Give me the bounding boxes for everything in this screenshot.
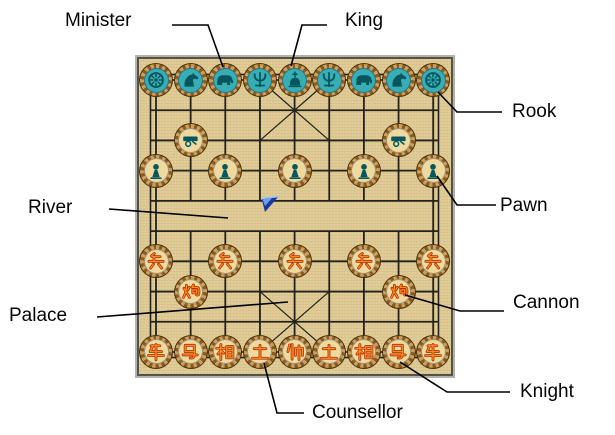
river-flag-icon — [260, 195, 280, 214]
black-knight-icon — [178, 68, 203, 93]
black-minister-piece[interactable] — [209, 64, 241, 96]
red-rook-icon — [421, 339, 446, 364]
red-king-icon — [282, 339, 307, 364]
red-pawn-icon — [213, 249, 238, 274]
black-cannon-piece[interactable] — [383, 124, 415, 156]
black-pawn-icon — [351, 158, 376, 183]
xiangqi-board[interactable] — [137, 57, 453, 376]
red-pawn-icon — [144, 249, 169, 274]
black-rook-piece[interactable] — [140, 64, 172, 96]
red-counsellor-piece[interactable] — [244, 336, 276, 368]
black-king-icon — [282, 68, 307, 93]
black-pawn-icon — [421, 158, 446, 183]
black-rook-icon — [421, 68, 446, 93]
red-minister-piece[interactable] — [348, 336, 380, 368]
black-counsellor-piece[interactable] — [244, 64, 276, 96]
label-river: River — [28, 198, 72, 217]
red-king-piece[interactable] — [279, 336, 311, 368]
black-minister-piece[interactable] — [348, 64, 380, 96]
label-knight: Knight — [520, 382, 574, 401]
red-pawn-piece[interactable] — [140, 245, 172, 277]
black-counsellor-icon — [317, 68, 342, 93]
red-cannon-piece[interactable] — [383, 276, 415, 308]
red-minister-icon — [351, 339, 376, 364]
red-knight-icon — [178, 339, 203, 364]
red-cannon-icon — [178, 279, 203, 304]
label-pawn: Pawn — [500, 196, 548, 215]
red-pawn-piece[interactable] — [279, 245, 311, 277]
black-knight-piece[interactable] — [383, 64, 415, 96]
label-palace: Palace — [9, 306, 67, 325]
black-cannon-icon — [178, 128, 203, 153]
red-pawn-piece[interactable] — [348, 245, 380, 277]
black-cannon-icon — [386, 128, 411, 153]
red-pawn-icon — [351, 249, 376, 274]
black-minister-icon — [351, 68, 376, 93]
red-knight-icon — [386, 339, 411, 364]
pieces-layer — [139, 59, 451, 374]
black-counsellor-icon — [247, 68, 272, 93]
figure-canvas: Minister King Rook Pawn River Palace Can… — [0, 0, 615, 435]
black-rook-piece[interactable] — [417, 64, 449, 96]
black-cannon-piece[interactable] — [175, 124, 207, 156]
black-knight-icon — [386, 68, 411, 93]
red-rook-icon — [144, 339, 169, 364]
label-minister: Minister — [65, 11, 132, 30]
black-minister-icon — [213, 68, 238, 93]
red-rook-piece[interactable] — [140, 336, 172, 368]
red-rook-piece[interactable] — [417, 336, 449, 368]
label-cannon: Cannon — [513, 293, 580, 312]
red-counsellor-icon — [317, 339, 342, 364]
red-knight-piece[interactable] — [383, 336, 415, 368]
red-pawn-icon — [282, 249, 307, 274]
red-pawn-piece[interactable] — [417, 245, 449, 277]
red-pawn-icon — [421, 249, 446, 274]
red-counsellor-icon — [247, 339, 272, 364]
black-pawn-icon — [282, 158, 307, 183]
red-cannon-icon — [386, 279, 411, 304]
black-pawn-icon — [144, 158, 169, 183]
black-knight-piece[interactable] — [175, 64, 207, 96]
black-counsellor-piece[interactable] — [313, 64, 345, 96]
red-cannon-piece[interactable] — [175, 276, 207, 308]
red-knight-piece[interactable] — [175, 336, 207, 368]
label-rook: Rook — [512, 102, 556, 121]
red-minister-icon — [213, 339, 238, 364]
black-pawn-piece[interactable] — [417, 155, 449, 187]
label-counsellor: Counsellor — [312, 403, 403, 422]
red-counsellor-piece[interactable] — [313, 336, 345, 368]
black-pawn-icon — [213, 158, 238, 183]
black-king-piece[interactable] — [279, 64, 311, 96]
red-minister-piece[interactable] — [209, 336, 241, 368]
black-pawn-piece[interactable] — [140, 155, 172, 187]
black-pawn-piece[interactable] — [348, 155, 380, 187]
black-pawn-piece[interactable] — [209, 155, 241, 187]
black-pawn-piece[interactable] — [279, 155, 311, 187]
label-king: King — [345, 11, 383, 30]
red-pawn-piece[interactable] — [209, 245, 241, 277]
black-rook-icon — [144, 68, 169, 93]
